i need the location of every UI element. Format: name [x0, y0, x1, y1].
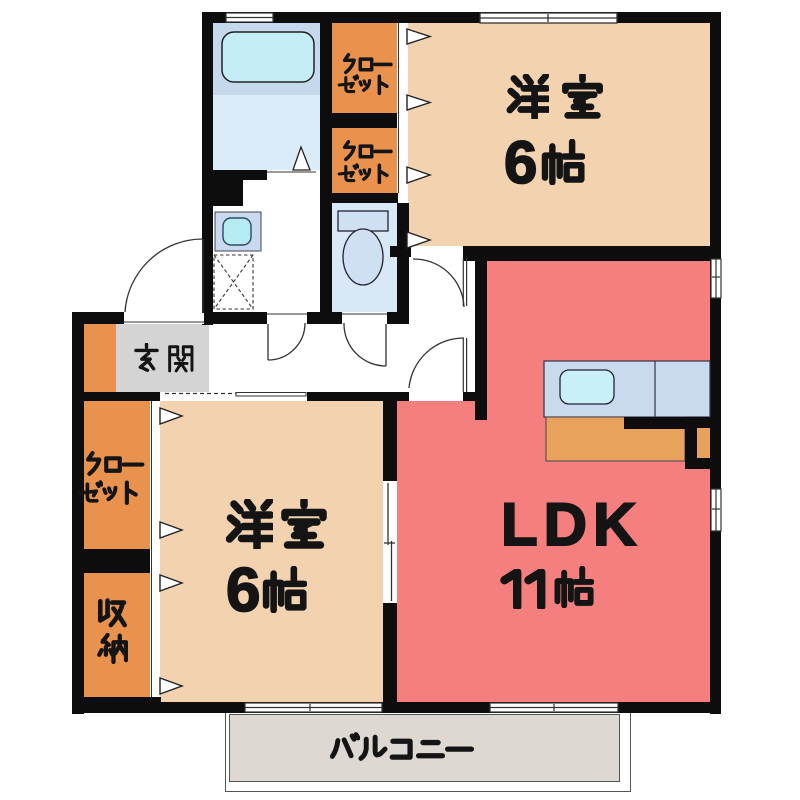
svg-text:LDK: LDK: [501, 491, 642, 558]
svg-text:6: 6: [226, 556, 260, 625]
svg-text:6: 6: [504, 129, 537, 196]
